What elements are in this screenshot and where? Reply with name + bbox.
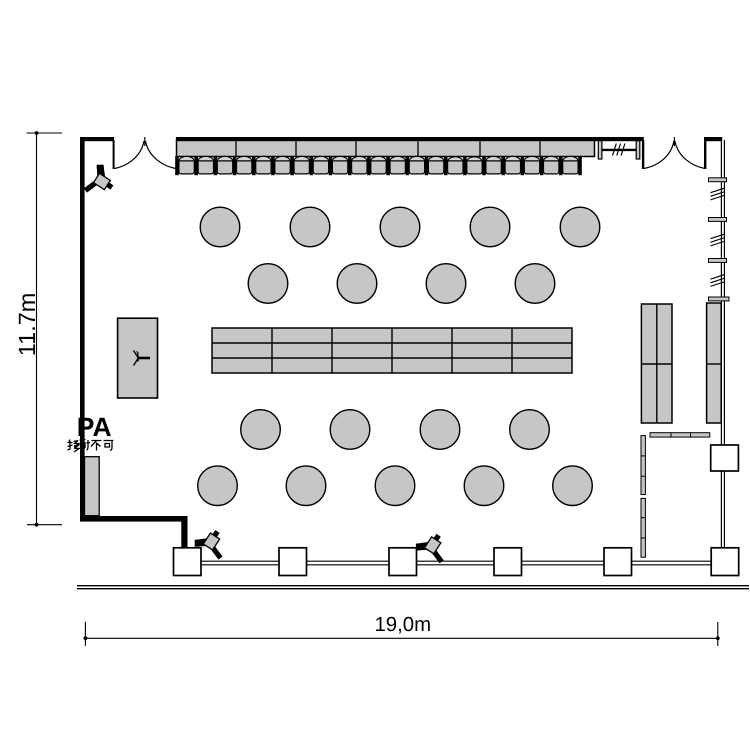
svg-text:PA: PA — [77, 412, 112, 442]
svg-text:19,0m: 19,0m — [374, 614, 431, 636]
svg-text:11.7m: 11.7m — [14, 293, 40, 357]
